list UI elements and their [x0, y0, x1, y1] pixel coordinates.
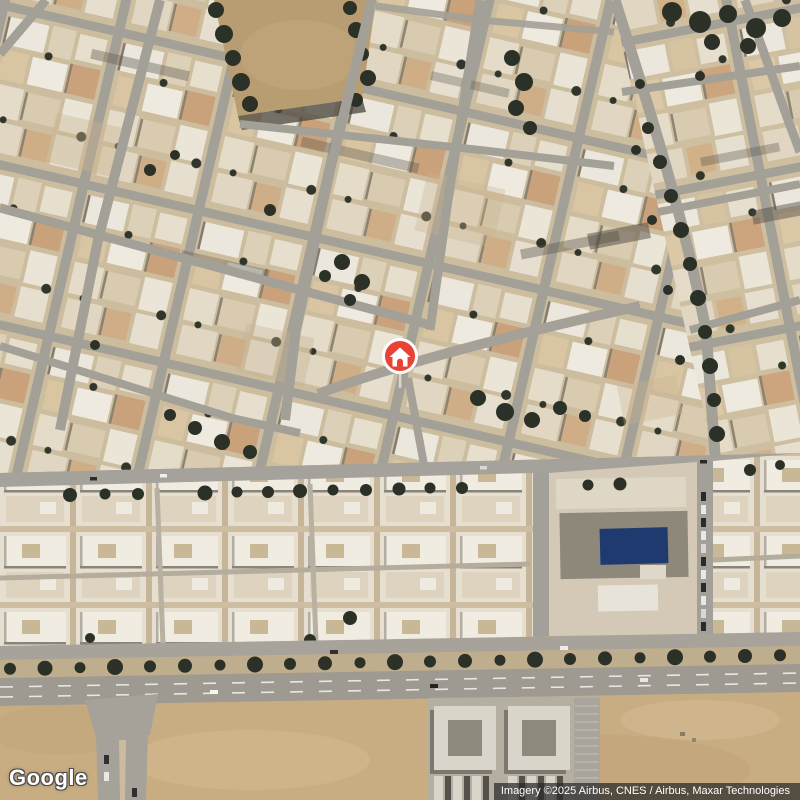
satellite-imagery: [0, 0, 800, 800]
attribution-bar: Imagery ©2025 Airbus, CNES / Airbus, Max…: [494, 783, 800, 800]
swimming-pool: [600, 527, 669, 565]
google-logo[interactable]: Google: [9, 765, 88, 791]
map-viewport[interactable]: Google Imagery ©2025 Airbus, CNES / Airb…: [0, 0, 800, 800]
attribution-text: Imagery ©2025 Airbus, CNES / Airbus, Max…: [501, 785, 790, 797]
